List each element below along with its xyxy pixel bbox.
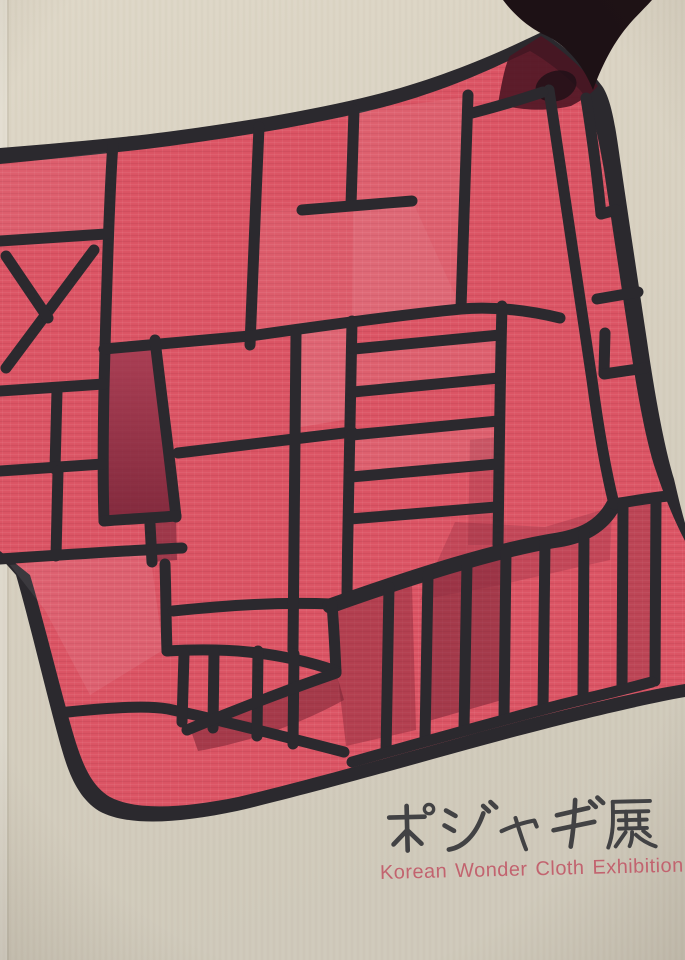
photo-vignette [0, 0, 685, 960]
pojagi-cloth-artwork [0, 0, 685, 960]
catalog-cover-photo: ポジャギ展 [0, 0, 685, 960]
